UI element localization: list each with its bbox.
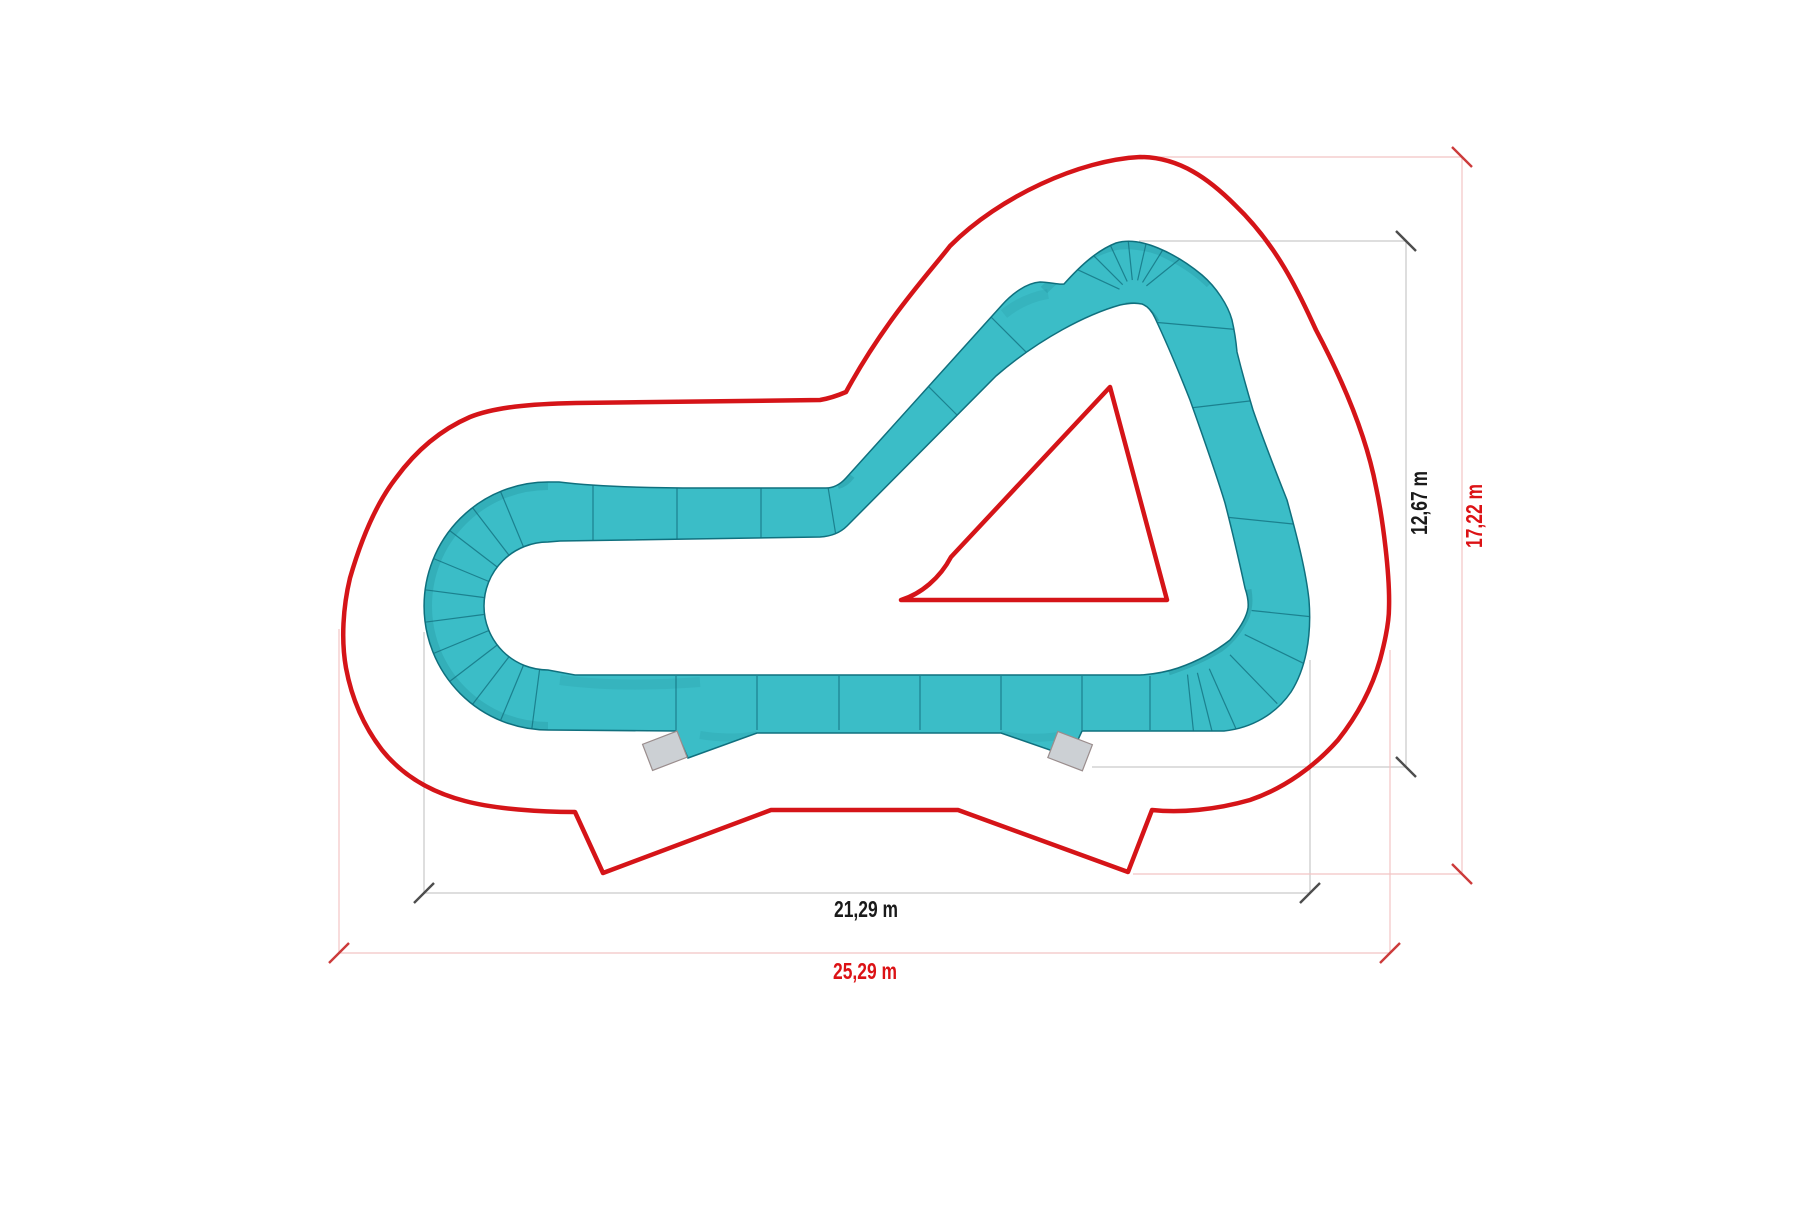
svg-text:12,67 m: 12,67 m	[1406, 471, 1432, 535]
svg-text:21,29 m: 21,29 m	[834, 896, 898, 922]
svg-text:17,22 m: 17,22 m	[1461, 484, 1487, 548]
svg-text:25,29 m: 25,29 m	[833, 958, 897, 984]
